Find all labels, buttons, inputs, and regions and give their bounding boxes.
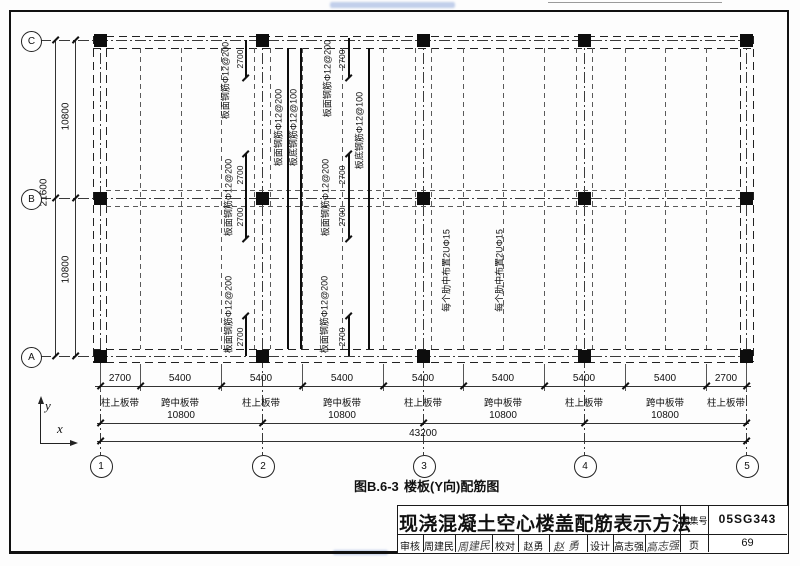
figure-title: 楼板(Y向)配筋图	[404, 476, 499, 495]
slab-edge	[753, 36, 754, 362]
grid-bubble-4: 4	[574, 455, 597, 478]
column	[256, 34, 269, 47]
frame-top	[9, 10, 789, 12]
rebar-label: 板面钢筋Φ12@200	[272, 68, 285, 188]
dim-value: 10800	[630, 410, 700, 421]
grid-line-2	[262, 34, 263, 455]
rebar-label: 板底钢筋Φ12@100	[353, 71, 366, 191]
column	[417, 192, 430, 205]
strip-line	[383, 48, 384, 349]
grid-bubble-A: A	[21, 347, 42, 368]
reviewer-label: 审核	[397, 538, 423, 553]
grid-bubble-3: 3	[413, 455, 436, 478]
grid-bubble-label: 4	[582, 461, 588, 472]
dim-value: 5400	[231, 373, 291, 384]
strip-line	[302, 48, 303, 349]
rib-note: 每个肋中布置2UΦ15	[440, 201, 453, 341]
rebar-line	[348, 316, 350, 356]
rebar-line	[245, 40, 247, 78]
rebar-label: 板面钢筋Φ12@200	[318, 255, 331, 375]
axis-y-label: y	[45, 398, 51, 414]
dim-value: 5400	[635, 373, 695, 384]
grid-bubble-1: 1	[90, 455, 113, 478]
frame-left	[9, 10, 11, 554]
designer-label: 设计	[587, 538, 613, 553]
strip-name: 柱上板带	[701, 395, 751, 409]
figure-number: 图B.6-3	[354, 476, 399, 495]
dim-value: 5400	[150, 373, 210, 384]
dim-total: 43200	[388, 428, 458, 439]
frame-right	[787, 10, 789, 553]
grid-line-A	[40, 356, 753, 357]
strip-line	[140, 48, 141, 349]
dim-line-total	[97, 441, 749, 442]
rebar-line	[368, 48, 370, 349]
dim-value: 5400	[312, 373, 372, 384]
dim-left-total: 21600	[39, 163, 50, 223]
dim-value: 5400	[393, 373, 453, 384]
reviewer-signature: 周建民	[454, 537, 492, 556]
dim-value: 10800	[146, 410, 216, 421]
dim-value: 2700	[701, 373, 751, 384]
grid-bubble-label: 2	[260, 461, 266, 472]
rib-note: 每个肋中布置2UΦ15	[493, 201, 506, 341]
column	[256, 350, 269, 363]
strip-line	[544, 48, 545, 349]
column	[740, 192, 753, 205]
dim-value: 10800	[307, 410, 377, 421]
grid-bubble-label: A	[28, 352, 35, 363]
strip-name: 跨中板带	[150, 395, 210, 409]
checker-label: 校对	[492, 538, 518, 553]
grid-bubble-label: 5	[744, 461, 750, 472]
column	[578, 34, 591, 47]
rebar-line	[348, 154, 350, 239]
axis-x-line	[40, 443, 70, 444]
column	[578, 350, 591, 363]
designer-signature: 高志强	[644, 537, 680, 555]
column	[417, 34, 430, 47]
rebar-line	[245, 154, 247, 239]
dim-value: 5400	[554, 373, 614, 384]
scan-artifact-line	[548, 2, 722, 3]
column	[578, 192, 591, 205]
checker-name: 赵勇	[518, 538, 549, 553]
extent-dim: 2700	[235, 307, 245, 367]
grid-line-B	[40, 198, 753, 199]
dim-value: 10800	[468, 410, 538, 421]
drawing-sheet: 板面钢筋Φ12@200 板面钢筋Φ12@200 板面钢筋Φ12@200 板面钢筋…	[0, 0, 800, 566]
grid-bubble-label: B	[28, 194, 35, 205]
beam-edge-line	[592, 48, 593, 349]
grid-bubble-B: B	[21, 189, 42, 210]
rebar-label: 板面钢筋Φ12@200	[219, 21, 232, 141]
column	[256, 192, 269, 205]
grid-line-3	[423, 34, 424, 455]
axis-y-line	[40, 403, 41, 443]
grid-line-C	[40, 40, 753, 41]
column	[94, 34, 107, 47]
frame-bottom	[9, 551, 398, 554]
grid-bubble-label: 1	[98, 461, 104, 472]
strip-line	[706, 48, 707, 349]
rebar-line	[300, 48, 302, 349]
page-label: 页	[680, 537, 708, 552]
extent-dim: 2700	[337, 29, 347, 89]
strip-line	[181, 48, 182, 349]
extent-dim: 2700	[235, 187, 245, 247]
strip-line	[463, 48, 464, 349]
rebar-label: 板面钢筋Φ12@200	[321, 19, 334, 139]
grid-bubble-C: C	[21, 31, 42, 52]
strip-name: 跨中板带	[635, 395, 695, 409]
rebar-line	[348, 38, 350, 78]
dim-left-upper: 10800	[61, 87, 72, 147]
dim-line-strips	[95, 386, 751, 387]
strip-name: 跨中板带	[312, 395, 372, 409]
axis-x-arrowhead	[70, 440, 78, 446]
strip-line	[665, 48, 666, 349]
axis-x-label: x	[57, 421, 63, 437]
grid-line-1	[100, 34, 101, 455]
grid-bubble-label: C	[28, 36, 35, 47]
page-number: 69	[708, 537, 787, 549]
rebar-label: 板底钢筋Φ12@100	[287, 68, 300, 188]
dim-value: 2700	[95, 373, 145, 384]
axis-y-arrowhead	[38, 396, 44, 404]
title-block-title: 现浇混凝土空心楼盖配筋表示方法	[399, 509, 679, 536]
strip-line	[625, 48, 626, 349]
rebar-label: 板面钢筋Φ12@200	[222, 138, 235, 258]
column	[94, 192, 107, 205]
atlas-number-label: 图集号	[680, 514, 708, 527]
checker-signature: 赵勇	[548, 537, 587, 556]
strip-name: 跨中板带	[473, 395, 533, 409]
atlas-number: 05SG343	[708, 512, 787, 526]
rebar-line	[245, 316, 247, 356]
dim-value: 5400	[473, 373, 533, 384]
rebar-label: 板面钢筋Φ12@200	[319, 138, 332, 258]
beam-edge-line	[106, 206, 740, 207]
grid-bubble-2: 2	[252, 455, 275, 478]
extent-dim: 2700	[337, 187, 347, 247]
column	[740, 350, 753, 363]
strip-name: 柱上板带	[231, 395, 291, 409]
slab-edge	[93, 48, 753, 49]
strip-name: 柱上板带	[95, 395, 145, 409]
extent-dim: 2700	[235, 29, 245, 89]
grid-bubble-5: 5	[736, 455, 759, 478]
strip-name: 柱上板带	[554, 395, 614, 409]
grid-line-4	[584, 34, 585, 455]
extent-dim: 2700	[337, 307, 347, 367]
reviewer-name: 周建民	[423, 538, 455, 553]
grid-line-5	[746, 34, 747, 455]
column	[740, 34, 753, 47]
strip-name: 柱上板带	[393, 395, 453, 409]
rebar-label: 板面钢筋Φ12@200	[222, 255, 235, 375]
grid-bubble-label: 3	[421, 461, 427, 472]
column	[94, 350, 107, 363]
watermark-smudge-top	[330, 2, 455, 8]
designer-name: 高志强	[613, 538, 645, 553]
beam-edge-line	[431, 48, 432, 349]
column	[417, 350, 430, 363]
dim-left-lower: 10800	[61, 240, 72, 300]
